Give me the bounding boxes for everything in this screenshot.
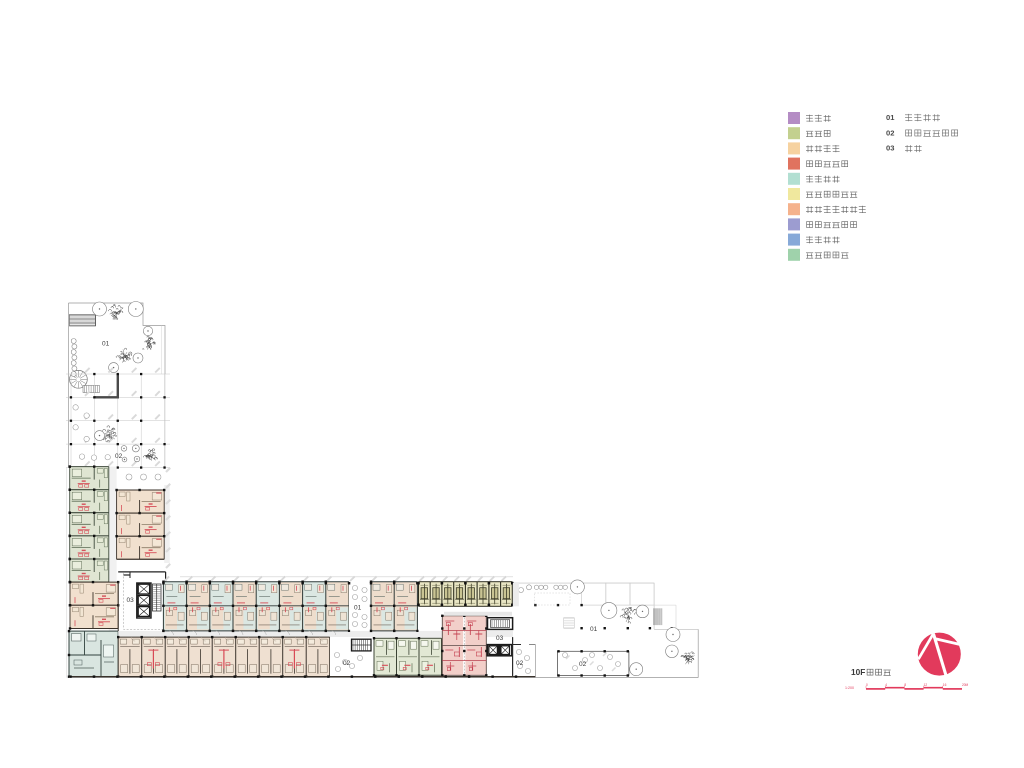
svg-text:01: 01 (590, 626, 598, 633)
svg-text:01: 01 (354, 605, 362, 612)
svg-text:01: 01 (886, 113, 895, 122)
svg-text:03: 03 (886, 144, 894, 153)
svg-text:8: 8 (904, 683, 906, 687)
svg-text:20M: 20M (962, 683, 969, 687)
svg-text:16: 16 (943, 683, 947, 687)
svg-text:4: 4 (885, 683, 887, 687)
svg-text:02: 02 (886, 128, 894, 137)
svg-text:10F: 10F (851, 667, 865, 677)
svg-text:1:200: 1:200 (845, 686, 854, 690)
svg-text:12: 12 (924, 683, 928, 687)
svg-text:03: 03 (496, 635, 504, 642)
svg-text:02: 02 (516, 660, 524, 667)
svg-text:0: 0 (866, 683, 868, 687)
svg-text:01: 01 (102, 341, 110, 348)
svg-text:03: 03 (127, 597, 135, 604)
svg-text:02: 02 (579, 661, 587, 668)
svg-text:02: 02 (115, 453, 123, 460)
svg-text:02: 02 (343, 660, 351, 667)
